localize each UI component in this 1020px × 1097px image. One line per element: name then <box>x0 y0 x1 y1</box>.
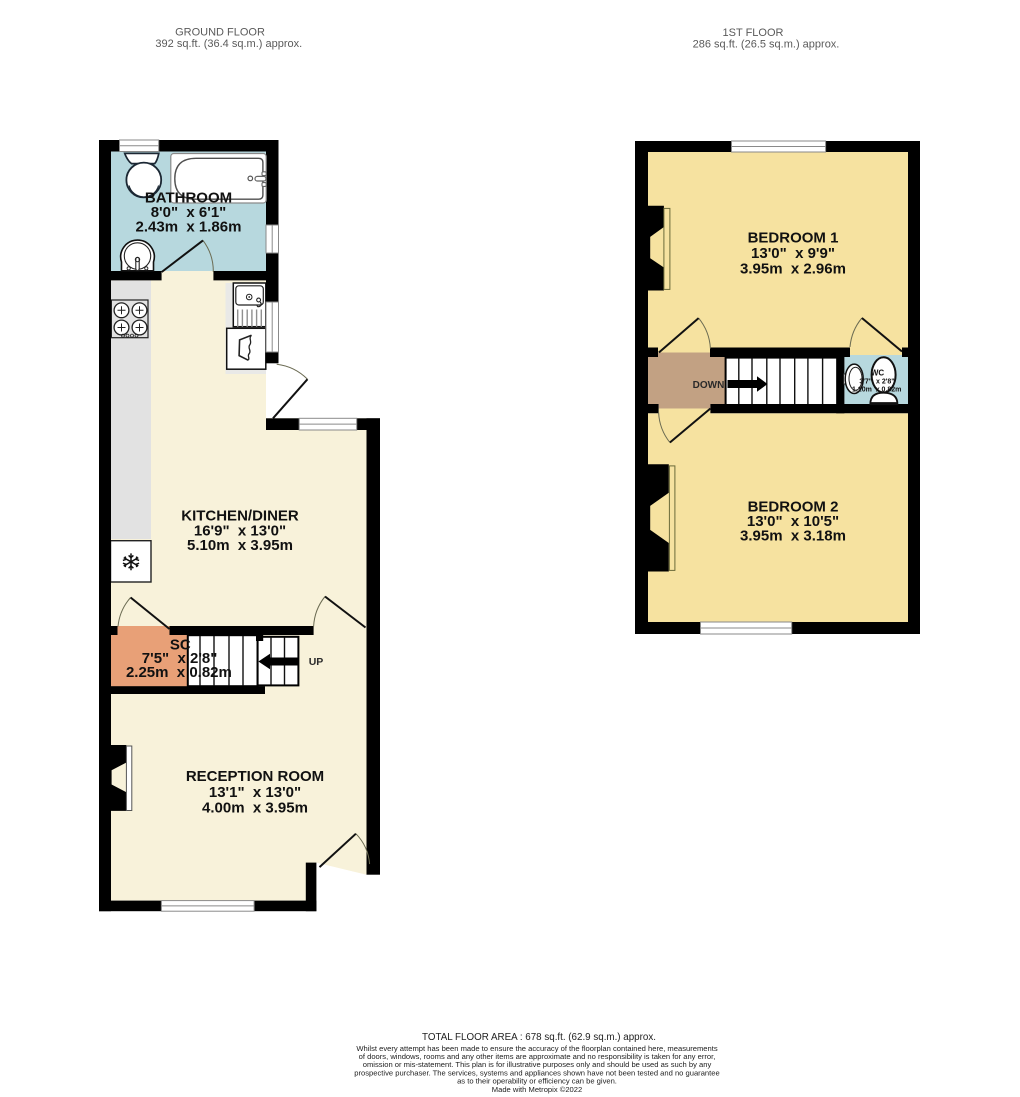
svg-text:WC: WC <box>871 369 885 378</box>
svg-text:3'7" x 2'8": 3'7" x 2'8" <box>859 378 894 385</box>
svg-text:286 sq.ft. (26.5 sq.m.) approx: 286 sq.ft. (26.5 sq.m.) approx. <box>693 38 840 50</box>
svg-text:4.00m x 3.95m: 4.00m x 3.95m <box>202 800 308 817</box>
svg-text:RECEPTION ROOM: RECEPTION ROOM <box>186 768 324 785</box>
svg-text:1.10m x 0.82m: 1.10m x 0.82m <box>852 386 901 393</box>
svg-text:2.43m x 1.86m: 2.43m x 1.86m <box>136 219 242 236</box>
svg-text:DOWN: DOWN <box>693 380 725 391</box>
svg-text:13'0" x 9'9": 13'0" x 9'9" <box>751 245 835 262</box>
svg-text:13'1" x 13'0": 13'1" x 13'0" <box>209 784 301 801</box>
svg-text:Made with Metropix ©2022: Made with Metropix ©2022 <box>492 1085 582 1094</box>
svg-text:3.95m x 3.18m: 3.95m x 3.18m <box>740 528 846 545</box>
svg-text:5.10m x 3.95m: 5.10m x 3.95m <box>187 537 293 554</box>
svg-text:TOTAL FLOOR AREA : 678 sq.ft.: TOTAL FLOOR AREA : 678 sq.ft. (62.9 sq.m… <box>422 1032 656 1043</box>
svg-text:GROUND FLOOR: GROUND FLOOR <box>175 27 265 39</box>
svg-text:UP: UP <box>309 656 324 668</box>
svg-text:BEDROOM 1: BEDROOM 1 <box>748 230 839 247</box>
svg-text:3.95m x 2.96m: 3.95m x 2.96m <box>740 261 846 278</box>
svg-text:392 sq.ft. (36.4 sq.m.) approx: 392 sq.ft. (36.4 sq.m.) approx. <box>155 38 302 50</box>
svg-text:2.25m x 0.82m: 2.25m x 0.82m <box>126 664 232 681</box>
